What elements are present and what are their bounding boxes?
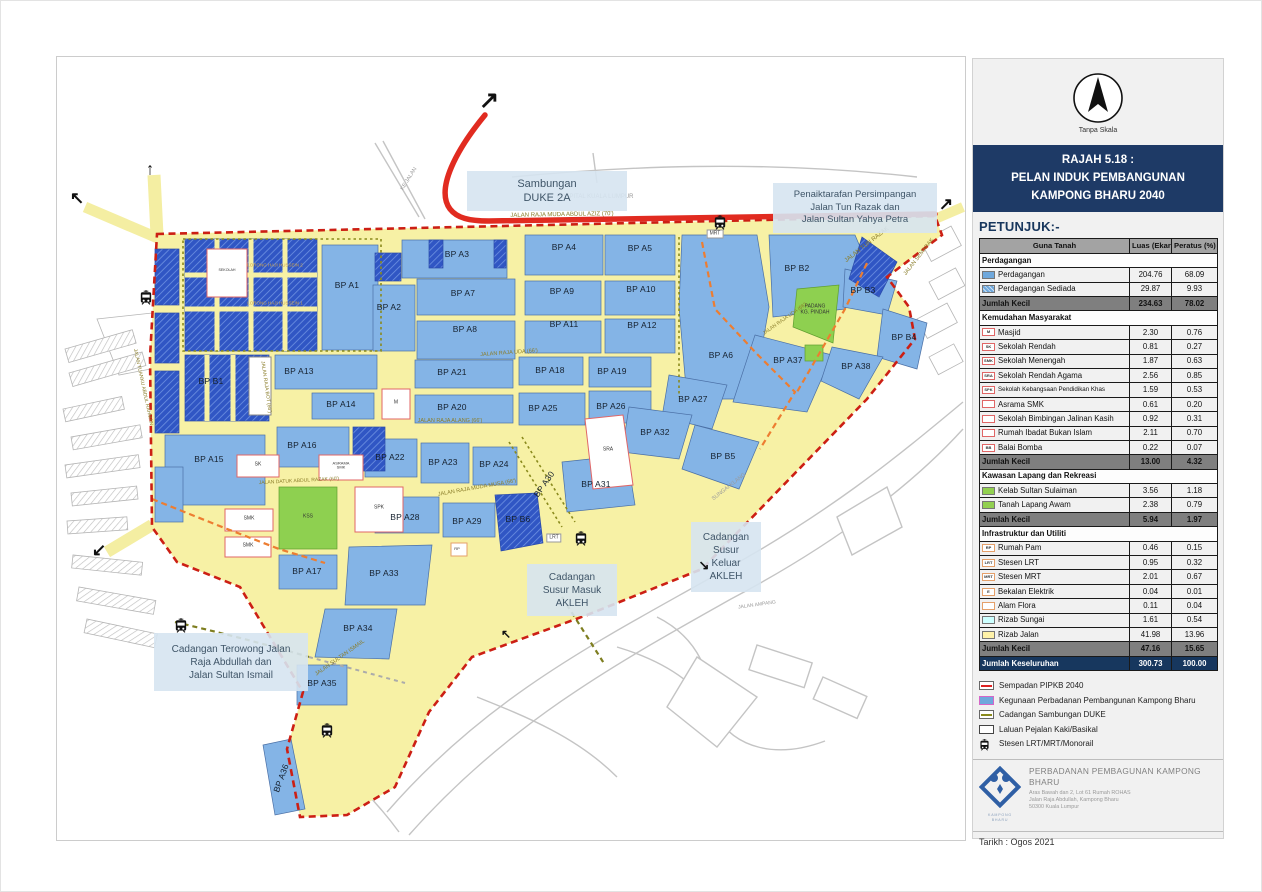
facility-label-line: KG. PINDAH — [801, 310, 830, 316]
landuse-swatch-icon: LRT — [982, 559, 995, 567]
landuse-swatch-icon — [982, 285, 995, 293]
zone-label: BP A36 — [271, 762, 290, 793]
map-callout: SambunganDUKE 2A — [467, 171, 627, 211]
section-label: Perdagangan — [980, 253, 1218, 267]
dash-red-icon — [979, 681, 994, 690]
peratus-value: 0.07 — [1172, 440, 1218, 454]
swatch-wrap: RPRumah Pam — [982, 544, 1127, 552]
peratus-value: 1.97 — [1172, 512, 1218, 526]
row-label: Sekolah Kebangsaan Pendidikan Khas — [998, 387, 1105, 393]
row-label-cell: Rumah Ibadat Bukan Islam — [980, 426, 1130, 440]
landuse-swatch-icon — [982, 400, 995, 408]
plan-sheet: BP A1BP A2BP A3BP A4BP A5BP A6BP A7BP A8… — [0, 0, 1262, 892]
row-label: Asrama SMK — [998, 401, 1044, 409]
zone-label: BP A15 — [194, 454, 223, 464]
zone-label: BP A7 — [451, 288, 475, 298]
row-label: Kelab Sultan Sulaiman — [998, 487, 1077, 495]
facility-label: KSS — [303, 514, 313, 520]
org-name: PERBADANAN PEMBAGUNAN KAMPONG BHARU — [1029, 766, 1217, 788]
table-row: Infrastruktur dan Utiliti — [980, 527, 1218, 541]
row-label-cell: Jumlah Keseluruhan — [980, 656, 1130, 670]
landuse-swatch-icon — [982, 602, 995, 610]
org-address: Aras Bawah dan 2, Lot 61 Rumah ROHAS Jal… — [1029, 790, 1217, 812]
callout-line: AKLEH — [527, 597, 617, 610]
luas-value: 29.87 — [1130, 282, 1172, 296]
org-logo: KAMPONG BHARU — [979, 766, 1021, 823]
direction-arrow: ↗ — [479, 89, 499, 113]
peratus-value: 0.27 — [1172, 340, 1218, 354]
row-label-cell: LRTStesen LRT — [980, 556, 1130, 570]
symbol-label: Laluan Pejalan Kaki/Basikal — [999, 725, 1098, 734]
luas-value: 204.76 — [1130, 268, 1172, 282]
zone-label: BP A35 — [307, 678, 336, 688]
compass-block: Tanpa Skala — [973, 59, 1223, 145]
road-label: JALAN AMPANG — [738, 599, 776, 610]
table-row: Kemudahan Masyarakat — [980, 311, 1218, 325]
facility-label-line: SK — [255, 462, 262, 468]
row-label: Stesen LRT — [998, 559, 1039, 567]
facility-label: SPK — [374, 505, 384, 511]
landuse-swatch-icon: E — [982, 588, 995, 596]
swatch-wrap: BBBalai Bomba — [982, 444, 1127, 452]
landuse-swatch-icon — [982, 429, 995, 437]
table-row: Perdagangan Sediada29.879.93 — [980, 282, 1218, 296]
luas-value: 234.63 — [1130, 297, 1172, 311]
table-row: EBekalan Elektrik0.040.01 — [980, 584, 1218, 598]
row-label: Sekolah Menengah — [998, 357, 1065, 365]
row-label-cell: SMKSekolah Menengah — [980, 354, 1130, 368]
callout-line: DUKE 2A — [467, 191, 627, 205]
title-line-1: RAJAH 5.18 : — [977, 152, 1219, 170]
section-label: Infrastruktur dan Utiliti — [980, 527, 1218, 541]
zone-label: BP A16 — [287, 440, 316, 450]
table-row: Alam Flora0.110.04 — [980, 599, 1218, 613]
legend-heading: PETUNJUK:- — [979, 219, 1217, 234]
org-footer: KAMPONG BHARU PERBADANAN PEMBAGUNAN KAMP… — [973, 759, 1223, 827]
zone-label: BP B6 — [506, 514, 531, 524]
facility-label-line: M — [394, 400, 398, 406]
map-callout: CadanganSusur MasukAKLEH — [527, 564, 617, 616]
swatch-wrap: MMasjid — [982, 328, 1127, 336]
landuse-swatch-icon — [982, 487, 995, 495]
row-label-cell: Alam Flora — [980, 599, 1130, 613]
zone-label: BP A18 — [535, 365, 564, 375]
peratus-value: 100.00 — [1172, 656, 1218, 670]
zone-label: BP A14 — [326, 399, 355, 409]
luas-value: 41.98 — [1130, 627, 1172, 641]
symbol-label: Sempadan PIPKB 2040 — [999, 681, 1084, 690]
swatch-wrap: SPKSekolah Kebangsaan Pendidikan Khas — [982, 386, 1127, 394]
table-row: Jumlah Keseluruhan300.73100.00 — [980, 656, 1218, 670]
peratus-value: 0.70 — [1172, 426, 1218, 440]
zone-label: BP A20 — [437, 402, 466, 412]
table-row: Perdagangan — [980, 253, 1218, 267]
table-row: MRTStesen MRT2.010.67 — [980, 570, 1218, 584]
table-row: BBBalai Bomba0.220.07 — [980, 440, 1218, 454]
callout-line: Cadangan Terowong Jalan — [154, 643, 308, 656]
landuse-swatch-icon — [982, 501, 995, 509]
table-row: Perdagangan204.7668.09 — [980, 268, 1218, 282]
peratus-value: 0.85 — [1172, 368, 1218, 382]
zone-label: BP A5 — [628, 243, 652, 253]
row-label-cell: Asrama SMK — [980, 397, 1130, 411]
direction-arrow: ↖ — [501, 628, 511, 640]
scale-note: Tanpa Skala — [1079, 127, 1118, 134]
road-label: JALAN TUANKU ABDUL RAHMAN — [132, 348, 154, 426]
row-label-cell: Jumlah Kecil — [980, 297, 1130, 311]
facility-label-line: SPK — [374, 505, 384, 511]
zone-label: BP A37 — [773, 355, 802, 365]
landuse-swatch-icon — [982, 631, 995, 639]
row-label: Sekolah Bimbingan Jalinan Kasih — [998, 415, 1114, 423]
ppkb-logo-icon — [979, 766, 1021, 808]
row-label-cell: Kelab Sultan Sulaiman — [980, 484, 1130, 498]
peratus-value: 0.53 — [1172, 383, 1218, 397]
swatch-wrap: Rizab Jalan — [982, 631, 1127, 639]
symbol-legend: Sempadan PIPKB 2040Kegunaan Perbadanan P… — [979, 678, 1217, 751]
symbol-legend-row: Laluan Pejalan Kaki/Basikal — [979, 722, 1217, 737]
row-label-cell: RPRumah Pam — [980, 541, 1130, 555]
facility-label: M — [394, 400, 398, 406]
symbol-label: Cadangan Sambungan DUKE — [999, 710, 1106, 719]
road-label: LORONG HAJI HUSSEIN 1 — [247, 301, 303, 306]
row-label: Perdagangan Sediada — [998, 285, 1076, 293]
callout-line: Jalan Tun Razak dan — [773, 202, 937, 214]
peratus-value: 0.15 — [1172, 541, 1218, 555]
direction-arrow: ↑ — [146, 161, 155, 178]
table-header-row: Guna TanahLuas (Ekar)Peratus (%) — [980, 239, 1218, 253]
road-label: LORONG HAJI HUSSEIN 2 — [247, 263, 303, 268]
zone-label: BP A6 — [709, 350, 733, 360]
swatch-wrap: Rumah Ibadat Bukan Islam — [982, 429, 1127, 437]
direction-arrow: ↘ — [699, 559, 710, 572]
peratus-value: 0.79 — [1172, 498, 1218, 512]
symbol-legend-row: Sempadan PIPKB 2040 — [979, 678, 1217, 693]
luas-value: 0.46 — [1130, 541, 1172, 555]
zone-label: BP A2 — [377, 302, 401, 312]
zone-label: BP A24 — [479, 459, 508, 469]
road-label: JALAN RAJA ALANG (66') — [418, 418, 483, 424]
peratus-value: 0.76 — [1172, 325, 1218, 339]
luas-value: 0.95 — [1130, 556, 1172, 570]
logo-subtext: KAMPONG BHARU — [979, 813, 1021, 823]
row-label-cell: Sekolah Bimbingan Jalinan Kasih — [980, 412, 1130, 426]
row-label-cell: SPKSekolah Kebangsaan Pendidikan Khas — [980, 383, 1130, 397]
swatch-wrap: Alam Flora — [982, 602, 1127, 610]
road-label: JALAN RAJA MUDA MUSA (66') — [437, 478, 516, 498]
zone-label: BP A21 — [437, 367, 466, 377]
column-header: Luas (Ekar) — [1130, 239, 1172, 253]
peratus-value: 0.31 — [1172, 412, 1218, 426]
row-label: Sekolah Rendah — [998, 343, 1056, 351]
north-arrow-icon — [1071, 71, 1125, 125]
peratus-value: 4.32 — [1172, 455, 1218, 469]
zone-label: BP A23 — [428, 457, 457, 467]
zone-label: BP A29 — [452, 516, 481, 526]
zone-label: BP A31 — [581, 479, 610, 489]
luas-value: 1.61 — [1130, 613, 1172, 627]
peratus-value: 9.93 — [1172, 282, 1218, 296]
zone-label: BP A9 — [550, 286, 574, 296]
swatch-wrap: SMKSekolah Menengah — [982, 357, 1127, 365]
landuse-swatch-icon — [982, 616, 995, 624]
swatch-wrap: Perdagangan Sediada — [982, 285, 1127, 293]
row-label-cell: SKSekolah Rendah — [980, 340, 1130, 354]
section-label: Kawasan Lapang dan Rekreasi — [980, 469, 1218, 483]
swatch-wrap: MRTStesen MRT — [982, 573, 1127, 581]
table-row: Sekolah Bimbingan Jalinan Kasih0.920.31 — [980, 412, 1218, 426]
zone-label: BP A1 — [335, 280, 359, 290]
peratus-value: 0.63 — [1172, 354, 1218, 368]
column-header: Peratus (%) — [1172, 239, 1218, 253]
road-label: JALAN RAJA UDA (66') — [480, 348, 538, 358]
peratus-value: 0.04 — [1172, 599, 1218, 613]
zone-label: BP B1 — [199, 376, 224, 386]
luas-value: 2.56 — [1130, 368, 1172, 382]
symbol-legend-row: Kegunaan Perbadanan Pembangunan Kampong … — [979, 693, 1217, 708]
row-label: Alam Flora — [998, 602, 1036, 610]
peratus-value: 13.96 — [1172, 627, 1218, 641]
road-label: JALAN SEMARAK — [903, 237, 936, 277]
table-row: SPKSekolah Kebangsaan Pendidikan Khas1.5… — [980, 383, 1218, 397]
map-area: BP A1BP A2BP A3BP A4BP A5BP A6BP A7BP A8… — [56, 56, 966, 841]
callout-line: Raja Abdullah dan — [154, 656, 308, 669]
row-label-cell: Tanah Lapang Awam — [980, 498, 1130, 512]
facility-label-line: SMK — [244, 516, 255, 522]
column-header: Guna Tanah — [980, 239, 1130, 253]
table-row: Jumlah Kecil13.004.32 — [980, 455, 1218, 469]
road-label: JALAN SULTAN ISMAIL — [314, 639, 366, 678]
symbol-legend-row: Stesen LRT/MRT/Monorail — [979, 737, 1217, 752]
luas-value: 0.04 — [1130, 584, 1172, 598]
facility-label-line: SMK — [243, 543, 254, 549]
row-label-cell: EBekalan Elektrik — [980, 584, 1130, 598]
table-row: SMKSekolah Menengah1.870.63 — [980, 354, 1218, 368]
swatch-wrap: Asrama SMK — [982, 400, 1127, 408]
landuse-table: Guna TanahLuas (Ekar)Peratus (%)Perdagan… — [979, 238, 1218, 671]
section-label: Kemudahan Masyarakat — [980, 311, 1218, 325]
row-label: Bekalan Elektrik — [998, 588, 1054, 596]
landuse-swatch-icon: SK — [982, 343, 995, 351]
peratus-value: 68.09 — [1172, 268, 1218, 282]
facility-label-line: SMK — [333, 466, 350, 470]
luas-value: 0.22 — [1130, 440, 1172, 454]
zone-label: BP A28 — [390, 512, 419, 522]
train-icon — [979, 739, 990, 752]
table-row: Jumlah Kecil234.6378.02 — [980, 297, 1218, 311]
station-tag: MRT — [707, 230, 724, 239]
luas-value: 13.00 — [1130, 455, 1172, 469]
landuse-swatch-icon — [982, 271, 995, 279]
swatch-wrap: LRTStesen LRT — [982, 559, 1127, 567]
table-row: Tanah Lapang Awam2.380.79 — [980, 498, 1218, 512]
direction-arrow: ↗ — [939, 196, 953, 213]
callout-line: Susur Masuk — [527, 584, 617, 597]
table-row: Asrama SMK0.610.20 — [980, 397, 1218, 411]
callout-line: Penaiktarafan Persimpangan — [773, 189, 937, 201]
peratus-value: 0.32 — [1172, 556, 1218, 570]
train-icon — [174, 618, 188, 634]
luas-value: 0.92 — [1130, 412, 1172, 426]
zone-label: BP B2 — [785, 263, 810, 273]
luas-value: 0.11 — [1130, 599, 1172, 613]
swatch-wrap: Rizab Sungai — [982, 616, 1127, 624]
callout-line: Susur — [691, 544, 761, 557]
row-label-cell: Perdagangan Sediada — [980, 282, 1130, 296]
swatch-wrap: EBekalan Elektrik — [982, 588, 1127, 596]
table-row: RPRumah Pam0.460.15 — [980, 541, 1218, 555]
zone-label: BP A12 — [627, 320, 656, 330]
swatch-wrap: SRASekolah Rendah Agama — [982, 372, 1127, 380]
table-row: LRTStesen LRT0.950.32 — [980, 556, 1218, 570]
landuse-swatch-icon: MRT — [982, 573, 995, 581]
facility-label: SRA — [603, 447, 613, 453]
luas-value: 3.56 — [1130, 484, 1172, 498]
zone-label: BP A25 — [528, 403, 557, 413]
landuse-swatch-icon: SRA — [982, 372, 995, 380]
luas-value: 1.59 — [1130, 383, 1172, 397]
callout-line: Jalan Sultan Ismail — [154, 669, 308, 682]
zone-label: BP A10 — [626, 284, 655, 294]
row-label-cell: Rizab Sungai — [980, 613, 1130, 627]
peratus-value: 0.67 — [1172, 570, 1218, 584]
callout-line: Sambungan — [467, 177, 627, 191]
zone-label: BP A32 — [640, 427, 669, 437]
luas-value: 0.81 — [1130, 340, 1172, 354]
table-row: SKSekolah Rendah0.810.27 — [980, 340, 1218, 354]
row-label: Balai Bomba — [998, 444, 1042, 452]
zone-label: BP A27 — [678, 394, 707, 404]
swatch-wrap: Perdagangan — [982, 271, 1127, 279]
table-row: SRASekolah Rendah Agama2.560.85 — [980, 368, 1218, 382]
map-overlay: BP A1BP A2BP A3BP A4BP A5BP A6BP A7BP A8… — [57, 57, 965, 840]
luas-value: 47.16 — [1130, 642, 1172, 656]
facility-label: SEKOLAH — [219, 269, 236, 273]
landuse-swatch-icon — [982, 415, 995, 423]
callout-line: Cadangan — [691, 531, 761, 544]
org-address-line: Jalan Raja Abdullah, Kampong Bharu — [1029, 797, 1217, 804]
map-callout: Penaiktarafan PersimpanganJalan Tun Raza… — [773, 183, 937, 233]
train-station-icon — [979, 739, 994, 748]
zone-label: BP A38 — [841, 361, 870, 371]
zone-label: BP B4 — [892, 332, 917, 342]
table-row: Jumlah Kecil47.1615.65 — [980, 642, 1218, 656]
table-row: Rizab Jalan41.9813.96 — [980, 627, 1218, 641]
map-title: RAJAH 5.18 : PELAN INDUK PEMBANGUNAN KAM… — [973, 145, 1223, 212]
luas-value: 2.01 — [1130, 570, 1172, 584]
zone-label: BP A17 — [292, 566, 321, 576]
zone-label: BP A33 — [369, 568, 398, 578]
table-row: MMasjid2.300.76 — [980, 325, 1218, 339]
org-address-line: 50300 Kuala Lumpur — [1029, 804, 1217, 811]
facility-label-line: RP — [454, 547, 460, 551]
table-row: Rumah Ibadat Bukan Islam2.110.70 — [980, 426, 1218, 440]
zone-label: BP A3 — [445, 249, 469, 259]
zone-label: BP A8 — [453, 324, 477, 334]
luas-value: 300.73 — [1130, 656, 1172, 670]
peratus-value: 15.65 — [1172, 642, 1218, 656]
train-icon — [139, 290, 153, 306]
facility-label: SMK — [243, 543, 254, 549]
zone-label: BP A19 — [597, 366, 626, 376]
row-label-cell: Perdagangan — [980, 268, 1130, 282]
station-tag: LRT — [546, 534, 561, 543]
zone-label: BP A11 — [550, 319, 579, 329]
white-box-icon — [979, 725, 994, 734]
facility-label-line: SEKOLAH — [219, 269, 236, 273]
row-label: Rumah Ibadat Bukan Islam — [998, 429, 1092, 437]
row-label-cell: MMasjid — [980, 325, 1130, 339]
train-icon — [574, 531, 588, 547]
landuse-swatch-icon: SPK — [982, 386, 995, 394]
dash-olive-icon — [979, 710, 994, 719]
peratus-value: 1.18 — [1172, 484, 1218, 498]
swatch-wrap: SKSekolah Rendah — [982, 343, 1127, 351]
luas-value: 2.38 — [1130, 498, 1172, 512]
road-label: SUNGAI KLANG — [711, 472, 747, 502]
luas-value: 0.61 — [1130, 397, 1172, 411]
peratus-value: 0.54 — [1172, 613, 1218, 627]
train-icon — [320, 723, 334, 739]
org-address-line: Aras Bawah dan 2, Lot 61 Rumah ROHAS — [1029, 790, 1217, 797]
facility-label-line: SRA — [603, 447, 613, 453]
row-label-cell: SRASekolah Rendah Agama — [980, 368, 1130, 382]
row-label: Sekolah Rendah Agama — [998, 372, 1082, 380]
row-label: Perdagangan — [998, 271, 1045, 279]
row-label-cell: Rizab Jalan — [980, 627, 1130, 641]
swatch-wrap: Sekolah Bimbingan Jalinan Kasih — [982, 415, 1127, 423]
direction-arrow: ↖ — [70, 190, 84, 207]
zone-label: BP A30 — [531, 469, 556, 499]
callout-line: Jalan Sultan Yahya Petra — [773, 214, 937, 226]
row-label-cell: Jumlah Kecil — [980, 512, 1130, 526]
zone-label: BP A4 — [552, 242, 576, 252]
landuse-swatch-icon: SMK — [982, 357, 995, 365]
swatch-wrap: Kelab Sultan Sulaiman — [982, 487, 1127, 495]
luas-value: 5.94 — [1130, 512, 1172, 526]
table-row: Rizab Sungai1.610.54 — [980, 613, 1218, 627]
landuse-swatch-icon: BB — [982, 444, 995, 452]
zone-label: BP A34 — [343, 623, 372, 633]
facility-label-line: KSS — [303, 514, 313, 520]
direction-arrow: ↙ — [92, 542, 106, 559]
luas-value: 2.30 — [1130, 325, 1172, 339]
facility-label: ASRAMASMK — [333, 462, 350, 471]
road-label: JALAN DATUK ABDUL RAZAK (60') — [259, 476, 340, 486]
peratus-value: 0.01 — [1172, 584, 1218, 598]
symbol-label: Stesen LRT/MRT/Monorail — [999, 739, 1093, 748]
luas-value: 2.11 — [1130, 426, 1172, 440]
table-row: Kelab Sultan Sulaiman3.561.18 — [980, 484, 1218, 498]
row-label: Tanah Lapang Awam — [998, 501, 1071, 509]
map-callout: Cadangan Terowong JalanRaja Abdullah dan… — [154, 633, 308, 691]
facility-label: RP — [454, 547, 460, 551]
legend-panel: Tanpa Skala RAJAH 5.18 : PELAN INDUK PEM… — [972, 58, 1224, 839]
fill-blue-icon — [979, 696, 994, 705]
zone-label: BP A26 — [596, 401, 625, 411]
row-label: Masjid — [998, 329, 1021, 337]
row-label: Rumah Pam — [998, 544, 1041, 552]
peratus-value: 78.02 — [1172, 297, 1218, 311]
row-label: Rizab Sungai — [998, 616, 1044, 624]
facility-label: SMK — [244, 516, 255, 522]
row-label-cell: BBBalai Bomba — [980, 440, 1130, 454]
row-label-cell: Jumlah Kecil — [980, 455, 1130, 469]
title-line-2: PELAN INDUK PEMBANGUNAN — [977, 170, 1219, 188]
peratus-value: 0.20 — [1172, 397, 1218, 411]
row-label: Stesen MRT — [998, 573, 1041, 581]
road-label: JALAN RAJA UDA (66') — [762, 302, 808, 337]
